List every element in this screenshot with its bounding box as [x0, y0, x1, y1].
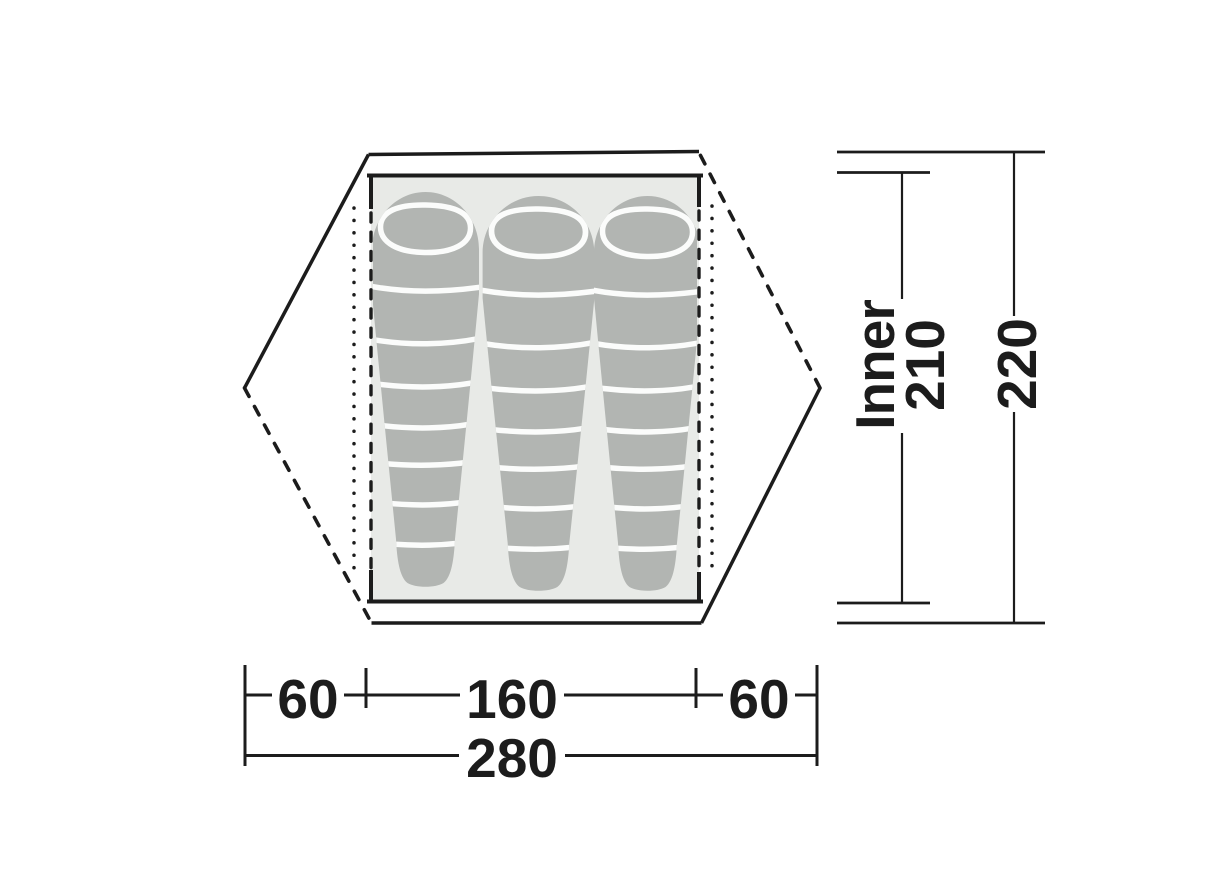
svg-text:60: 60	[728, 668, 789, 730]
svg-text:160: 160	[466, 668, 558, 730]
svg-text:210: 210	[894, 319, 956, 411]
svg-text:220: 220	[986, 318, 1048, 410]
svg-text:280: 280	[466, 727, 558, 789]
svg-text:60: 60	[277, 668, 338, 730]
